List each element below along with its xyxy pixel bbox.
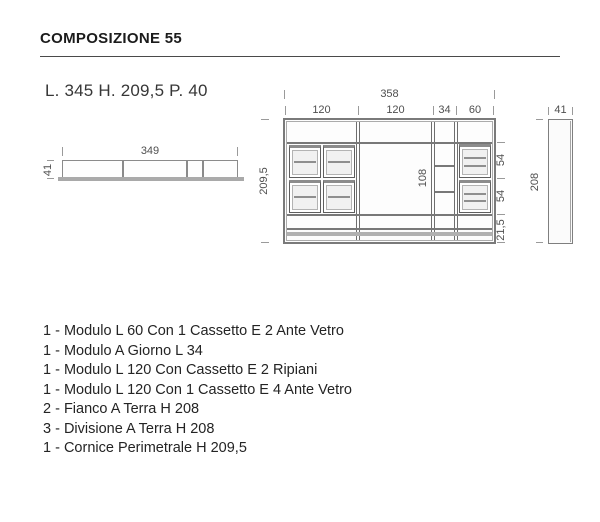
shelf-line — [294, 161, 316, 163]
dim-tick — [358, 106, 359, 115]
glass-pane — [292, 185, 318, 210]
parts-list-item: 3 - Divisione A Terra H 208 — [43, 420, 352, 440]
top-view-drawing: 349 41 — [62, 160, 238, 179]
dim-tick — [284, 90, 285, 99]
parts-list-item: 1 - Cornice Perimetrale H 209,5 — [43, 439, 352, 459]
module-width-label-2: 120 — [358, 104, 433, 116]
module-width-label-1: 120 — [285, 104, 358, 116]
glass-door — [459, 180, 491, 213]
dim-tick — [572, 107, 573, 115]
open-shelf-line — [435, 191, 454, 193]
module-width-label-3: 34 — [433, 104, 456, 116]
dim-tick — [456, 106, 457, 115]
dim-tick — [494, 90, 495, 99]
parts-list-item: 1 - Modulo L 60 Con 1 Cassetto E 2 Ante … — [43, 322, 352, 342]
dim-tick — [62, 147, 63, 156]
shelf-line — [464, 200, 486, 202]
shelf-line — [464, 193, 486, 195]
glass-door — [289, 145, 321, 178]
division-line — [356, 122, 360, 240]
top-view-depth-label: 41 — [42, 160, 54, 180]
glass-pane — [462, 149, 488, 175]
parts-list-item: 2 - Fianco A Terra H 208 — [43, 400, 352, 420]
dim-tick — [261, 242, 269, 243]
glass-door — [323, 180, 355, 213]
dim-tick — [493, 106, 494, 115]
open-shelf-line — [435, 165, 454, 167]
composition-sheet: COMPOSIZIONE 55 L. 345 H. 209,5 P. 40 34… — [0, 0, 600, 522]
base-strip — [287, 232, 492, 236]
dim-tick — [497, 142, 505, 143]
right-dim-54-upper: 54 — [495, 145, 507, 175]
glass-door — [323, 145, 355, 178]
parts-list-item: 1 - Modulo L 120 Con Cassetto E 2 Ripian… — [43, 361, 352, 381]
glass-door — [459, 144, 491, 178]
dim-tick — [536, 119, 543, 120]
front-view-drawing: 358 120 120 34 60 209,5 54 54 21,5 — [283, 118, 496, 244]
opening-height-label: 108 — [417, 158, 429, 198]
side-front-edge — [570, 121, 572, 242]
module-width-label-4: 60 — [456, 104, 494, 116]
division-line — [431, 122, 435, 240]
plan-divider-line — [186, 161, 188, 178]
glass-pane — [326, 185, 352, 210]
side-height-label: 208 — [529, 167, 541, 197]
dim-tick — [285, 106, 286, 115]
top-view-width-label: 349 — [63, 145, 237, 157]
shelf-line — [464, 165, 486, 167]
parts-list-item: 1 - Modulo A Giorno L 34 — [43, 342, 352, 362]
right-dim-54-lower: 54 — [495, 181, 507, 211]
dim-tick — [536, 242, 543, 243]
plan-front-edge — [58, 177, 244, 181]
page-title: COMPOSIZIONE 55 — [40, 30, 182, 47]
front-total-width-label: 358 — [285, 88, 494, 100]
dim-tick — [433, 106, 434, 115]
title-divider — [40, 56, 560, 57]
plan-divider-line — [122, 161, 124, 178]
dim-tick — [497, 178, 505, 179]
glass-pane — [462, 185, 488, 210]
dim-tick — [261, 119, 269, 120]
division-line — [454, 122, 458, 240]
side-view-drawing: 41 208 — [548, 119, 573, 244]
drawer-top-line — [287, 214, 492, 216]
glass-pane — [292, 150, 318, 175]
dim-tick — [497, 214, 505, 215]
parts-list: 1 - Modulo L 60 Con 1 Cassetto E 2 Ante … — [43, 322, 352, 459]
front-height-label: 209,5 — [258, 156, 270, 206]
dim-tick — [548, 107, 549, 115]
shelf-line — [328, 196, 350, 198]
shelf-line — [294, 196, 316, 198]
shelf-line — [328, 161, 350, 163]
dim-tick — [47, 178, 54, 179]
dim-tick — [237, 147, 238, 156]
dim-tick — [47, 160, 54, 161]
parts-list-item: 1 - Modulo L 120 Con 1 Cassetto E 4 Ante… — [43, 381, 352, 401]
drawer-bottom-line — [287, 228, 492, 230]
glass-door — [289, 180, 321, 213]
dim-tick — [497, 242, 505, 243]
plan-divider-line — [202, 161, 204, 178]
glass-pane — [326, 150, 352, 175]
overall-dimensions-text: L. 345 H. 209,5 P. 40 — [45, 81, 208, 101]
shelf-line — [464, 157, 486, 159]
